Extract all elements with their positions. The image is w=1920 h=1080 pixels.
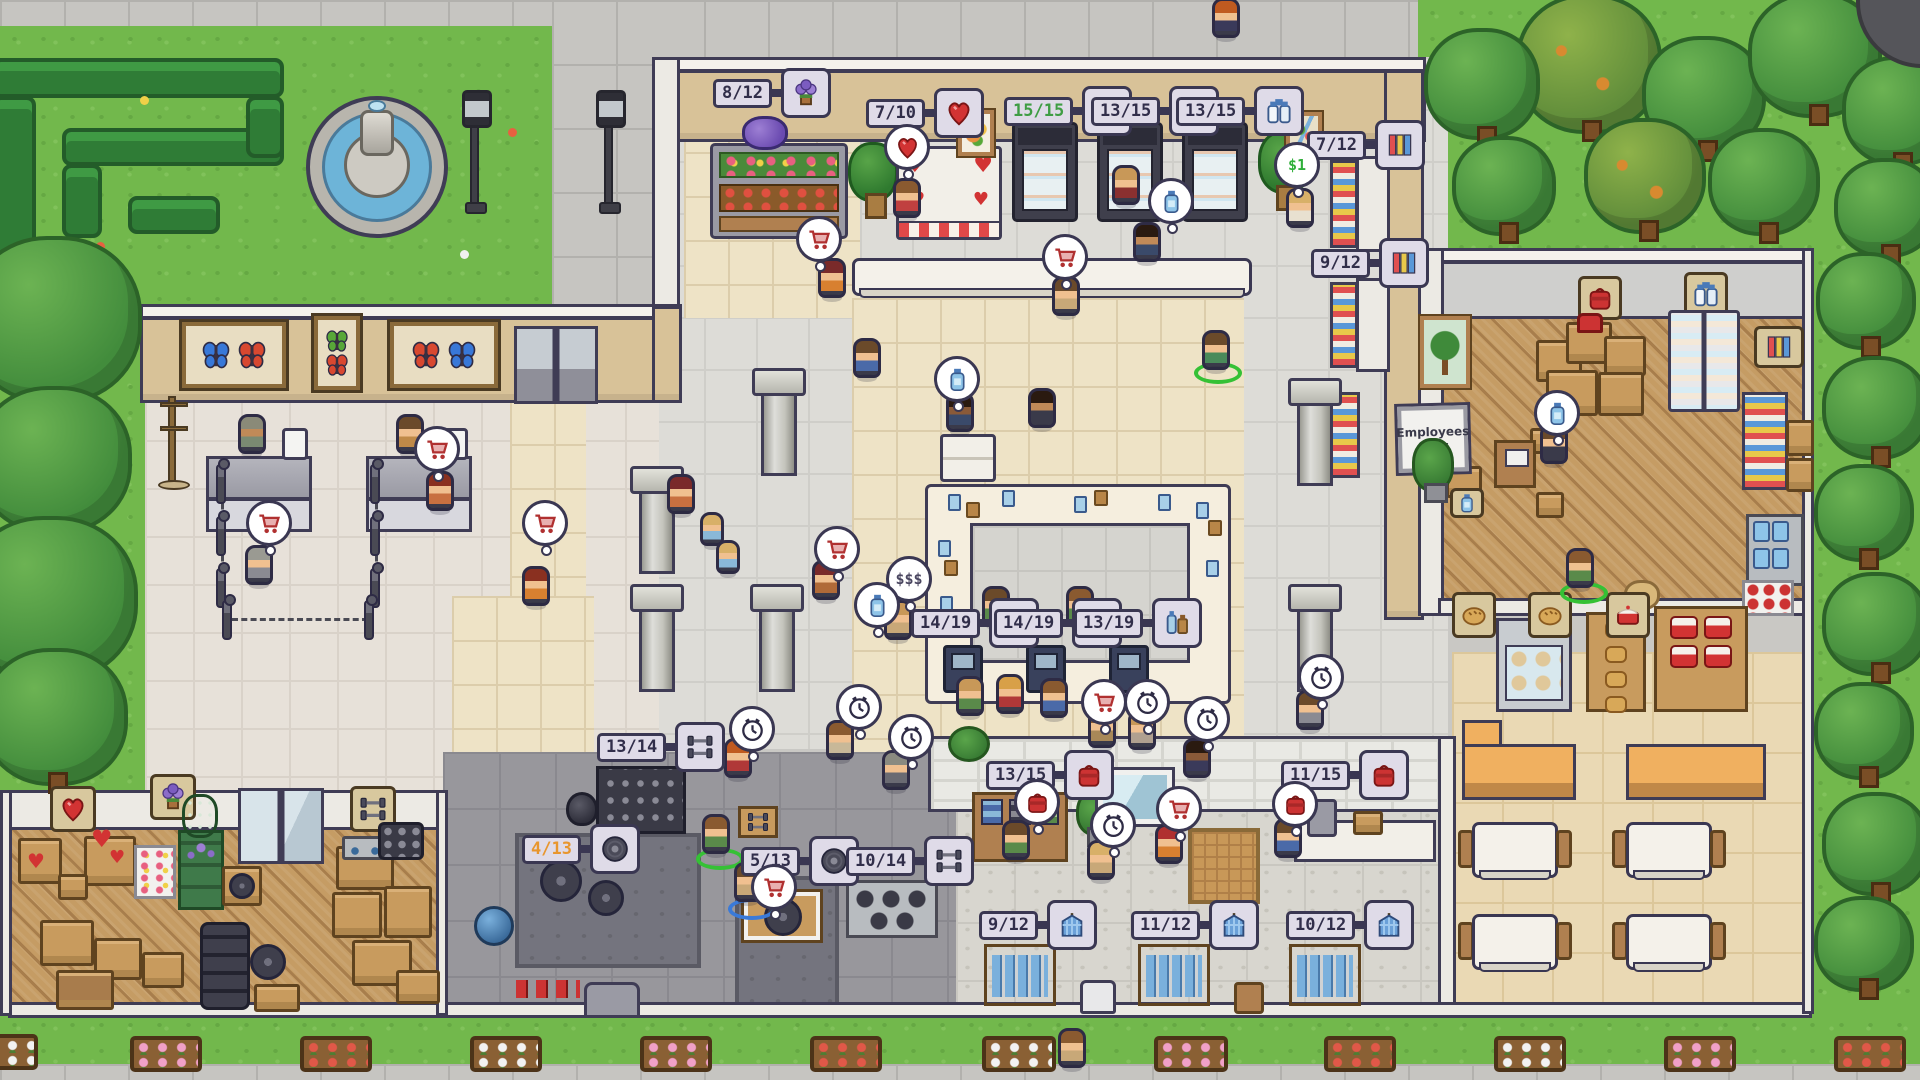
tree	[1708, 128, 1820, 236]
pedestrian[interactable]	[1212, 0, 1240, 38]
tree	[1816, 252, 1916, 350]
cafe-table[interactable]	[1626, 822, 1712, 878]
coat-stand-base	[158, 480, 190, 490]
jersey-icon	[1209, 900, 1259, 950]
jersey-icon	[1047, 900, 1097, 950]
tree-autumn	[1584, 118, 1706, 234]
butterfly-frame	[182, 322, 286, 388]
bottle-item	[1002, 490, 1015, 507]
thought-bubble	[796, 216, 842, 262]
thought-bubble	[1272, 781, 1318, 827]
customer[interactable]	[1028, 388, 1056, 428]
customer[interactable]	[667, 474, 695, 514]
cake-sign	[1606, 592, 1650, 638]
heart-icon	[894, 134, 921, 161]
stock-box	[142, 952, 184, 988]
player-character[interactable]	[1202, 330, 1230, 370]
small-shelf[interactable]	[940, 434, 996, 482]
tree	[1822, 356, 1920, 460]
thought-bubble	[1042, 234, 1088, 280]
card-reader[interactable]	[282, 428, 308, 460]
gym-worker[interactable]	[702, 814, 730, 854]
milk-bottle-icon	[944, 366, 971, 393]
heart-decal: ♥	[973, 189, 989, 210]
stock-box	[40, 920, 94, 966]
tree	[0, 236, 142, 404]
water-jug	[1772, 548, 1789, 569]
stock-value: 8/12	[713, 79, 772, 108]
backroom-worker[interactable]	[1566, 548, 1594, 588]
waiting-bubble	[888, 714, 934, 760]
backroom-top-wall	[1438, 261, 1812, 319]
hall-store-corner-wall	[652, 306, 682, 403]
cafe-counter-1[interactable]	[1462, 744, 1576, 800]
waiting-clock-icon	[1308, 664, 1335, 691]
briefcase	[1353, 811, 1383, 835]
magazine-shelf-panel	[1356, 278, 1390, 372]
shopping-cart-icon	[1052, 244, 1079, 271]
dumbbells-icon	[675, 722, 725, 772]
queue-chain	[232, 618, 368, 621]
gym-approach-patch	[452, 596, 594, 758]
gym-bag-icon	[1282, 791, 1309, 818]
valentine-stand-skirt	[899, 221, 999, 237]
weight-plate	[250, 944, 286, 980]
game-viewport: ♥ ♥ ♥ ♥ Employees Only	[0, 0, 1920, 1080]
flower-bed-pink	[130, 1036, 202, 1072]
backroom-fridge[interactable]	[1668, 310, 1740, 412]
stock-value: 7/10	[866, 99, 925, 128]
coat-stand-hook	[160, 426, 188, 431]
bottle-item	[1206, 560, 1219, 577]
water-jug	[1772, 521, 1789, 542]
waiting-bubble	[1184, 696, 1230, 742]
stock-box	[1786, 420, 1814, 456]
thought-bubble	[854, 582, 900, 628]
flower-dot	[140, 96, 149, 105]
waiting-bubble	[836, 684, 882, 730]
stock-label-dumbbells-b[interactable]: 10/14	[846, 836, 974, 886]
stock-box	[1598, 372, 1644, 416]
waiting-clock-icon	[1194, 706, 1221, 733]
cafe-chair[interactable]	[1556, 922, 1572, 960]
water-jug	[1753, 548, 1770, 569]
milk-crate-sign	[1450, 488, 1484, 518]
dumbbell-pile	[378, 822, 424, 860]
cake	[1704, 645, 1732, 668]
kettlebell	[566, 792, 598, 826]
shopping-cart-icon	[256, 510, 283, 537]
red-bag-in-box	[1577, 313, 1603, 333]
heart-item: ♥	[27, 849, 45, 873]
flower-bush	[742, 116, 788, 150]
flower-bed-pink	[1664, 1036, 1736, 1072]
queue-stanchion	[370, 464, 380, 504]
cafe-chair[interactable]	[1710, 830, 1726, 868]
customer[interactable]	[1133, 222, 1161, 262]
gym-bag-icon	[1359, 750, 1409, 800]
laptop	[1505, 449, 1529, 467]
stock-box	[332, 892, 382, 938]
pillar	[759, 606, 795, 692]
backroom-desk[interactable]	[1494, 440, 1536, 488]
stock-value: 4/13	[522, 835, 581, 864]
stock-label-jerseys-c[interactable]: 10/12	[1286, 900, 1414, 950]
open-heart-box: ♥	[18, 838, 62, 884]
heart-stock-sign	[50, 786, 96, 832]
thought-bubble	[1534, 390, 1580, 436]
butterfly-icon	[325, 329, 349, 353]
queue-stanchion	[370, 516, 380, 556]
open-heart-box: ♥♥	[84, 836, 136, 886]
waiting-clock-icon	[739, 716, 766, 743]
fountain-top	[360, 110, 394, 156]
stock-value: 10/12	[1286, 911, 1355, 940]
bread-loaf	[1605, 646, 1627, 663]
customer[interactable]	[853, 338, 881, 378]
apparel-cafe-divider	[1438, 736, 1456, 1014]
plate-stack	[200, 922, 250, 1010]
stock-value: 14/19	[994, 609, 1063, 638]
tree	[1814, 682, 1914, 780]
thought-bubble	[751, 864, 797, 910]
cactus	[182, 794, 218, 838]
red-dumbbells	[516, 980, 580, 998]
coat-stand-hook	[160, 402, 188, 407]
thought-bubble	[814, 526, 860, 572]
stock-box	[384, 886, 432, 938]
flower-dot	[508, 128, 517, 137]
stock-box	[396, 970, 440, 1004]
thought-bubble	[1014, 779, 1060, 825]
bottle-item	[938, 540, 951, 557]
customer[interactable]	[893, 178, 921, 218]
jersey-icon	[1364, 900, 1414, 950]
butterfly-icon	[237, 340, 267, 370]
cafe-table[interactable]	[1626, 914, 1712, 970]
gym-bag-icon	[1024, 789, 1051, 816]
cafe-counter-2[interactable]	[1626, 744, 1766, 800]
butterfly-frame	[390, 322, 498, 388]
shopping-cart-icon	[824, 536, 851, 563]
waiting-clock-icon	[1134, 689, 1161, 716]
pedestrian[interactable]	[1058, 1028, 1086, 1068]
milk-bottle-icon	[1158, 188, 1185, 215]
stock-value: 14/19	[911, 609, 980, 638]
thought-bubble	[884, 124, 930, 170]
shopping-cart-icon	[806, 226, 833, 253]
drinks-icon	[1152, 598, 1202, 648]
stock-box	[1786, 458, 1814, 492]
heart-decal: ♥	[973, 153, 993, 178]
jar-item	[944, 560, 958, 576]
stock-value: 13/19	[1074, 609, 1143, 638]
water-jug-shelf[interactable]	[1746, 514, 1804, 586]
bench	[1234, 982, 1264, 1014]
flower-bed-white	[0, 1034, 38, 1070]
pillar-cap	[1288, 584, 1342, 612]
cafe-table[interactable]	[1472, 822, 1558, 878]
flower-bed-pink	[640, 1036, 712, 1072]
flower-bed-white	[470, 1036, 542, 1072]
waiting-clock-icon	[1100, 812, 1127, 839]
butterfly-icon	[325, 353, 349, 377]
pillar	[761, 390, 797, 476]
thought-bubble	[1148, 178, 1194, 224]
water-jug	[1753, 521, 1770, 542]
open-box	[56, 970, 114, 1010]
sidewalk-bottom	[0, 1064, 1920, 1080]
customer[interactable]	[522, 566, 550, 606]
magazines-icon	[1379, 238, 1429, 288]
tree	[1822, 572, 1920, 676]
coat-stand	[168, 396, 176, 482]
queue-customer[interactable]	[1040, 678, 1068, 718]
apparel-clerk[interactable]	[1002, 820, 1030, 860]
flower-bed-red	[300, 1036, 372, 1072]
stock-value: 11/12	[1131, 911, 1200, 940]
flower-bed-red	[1324, 1036, 1396, 1072]
drinks-fridge-1[interactable]	[1012, 122, 1078, 222]
tree	[0, 386, 132, 534]
stock-label-checkout-c[interactable]: 13/19	[1074, 598, 1202, 648]
cafe-table[interactable]	[1472, 914, 1558, 970]
stock-value: 9/12	[979, 911, 1038, 940]
tree	[1424, 28, 1540, 140]
folded-clothes	[981, 799, 1003, 825]
pillar	[1297, 400, 1333, 486]
tree	[0, 648, 128, 786]
magazine-rack[interactable]	[1330, 282, 1358, 368]
jersey-rack[interactable]	[1138, 944, 1210, 1006]
hedge-row	[0, 58, 284, 98]
shopping-cart-icon	[1091, 689, 1118, 716]
cake	[1704, 616, 1732, 639]
bottle-item	[948, 494, 961, 511]
child-customer[interactable]	[716, 540, 740, 574]
magazine-rack[interactable]	[1330, 160, 1358, 248]
milk-bottles-icon	[1254, 86, 1304, 136]
lamp-post	[604, 122, 613, 210]
coffee-counter[interactable]	[1294, 820, 1436, 862]
exercise-ball	[474, 906, 514, 946]
tree	[1814, 896, 1914, 992]
cafe-chair[interactable]	[1556, 830, 1572, 868]
stock-label-plates-low[interactable]: 4/13	[522, 824, 640, 874]
hedge-block	[128, 196, 220, 234]
thought-bubble	[414, 426, 460, 472]
storage-glass-door[interactable]	[238, 788, 324, 864]
pillar-cap	[1288, 378, 1342, 406]
waiting-bubble	[1298, 654, 1344, 700]
flower-bed-red	[1834, 1036, 1906, 1072]
dumbbells-icon	[924, 836, 974, 886]
pillar-cap	[752, 368, 806, 396]
cake	[1670, 645, 1698, 668]
flower-crate-green	[178, 830, 224, 910]
hedge-column	[62, 164, 102, 238]
tree	[1834, 158, 1920, 258]
milk-bottle-icon	[864, 592, 891, 619]
stock-value: 15/15	[1004, 97, 1073, 126]
gym-bag-icon	[1064, 750, 1114, 800]
carried-dumbbell-box	[738, 806, 778, 838]
cake	[1670, 616, 1698, 639]
queue-stanchion	[216, 464, 226, 504]
tree	[1822, 792, 1920, 896]
shopping-cart-icon	[532, 510, 559, 537]
stock-label-dumbbell-rack[interactable]: 13/14	[597, 722, 725, 772]
bread-loaf	[1605, 696, 1627, 713]
customer[interactable]	[1112, 165, 1140, 205]
milk-bottle-icon	[1544, 400, 1571, 427]
stock-value: 13/15	[1091, 97, 1160, 126]
thought-bubble	[934, 356, 980, 402]
waiting-bubble	[1090, 802, 1136, 848]
price-bubble: $1	[1274, 142, 1320, 188]
jersey-rack[interactable]	[1289, 944, 1361, 1006]
price-text: $1	[1288, 156, 1306, 174]
laundry-cart	[1080, 980, 1116, 1014]
butterfly-icon	[447, 340, 477, 370]
butterfly-frame-small	[314, 316, 360, 390]
flower-bed-white	[982, 1036, 1056, 1072]
jar-item	[1208, 520, 1222, 536]
jar-item	[1094, 490, 1108, 506]
potted-plant	[1412, 438, 1454, 492]
bottle-item	[1158, 494, 1171, 511]
thought-bubble	[1081, 679, 1127, 725]
thought-bubble	[246, 500, 292, 546]
queue-stanchion	[364, 600, 374, 640]
shopping-cart-icon	[1166, 796, 1193, 823]
thought-bubble	[522, 500, 568, 546]
backroom-picture	[1420, 316, 1470, 388]
lamp-post	[470, 122, 479, 210]
pillar	[639, 606, 675, 692]
weight-plate	[229, 873, 255, 899]
jersey-rack[interactable]	[984, 944, 1056, 1006]
tree	[1814, 464, 1914, 562]
flower-dot	[460, 250, 469, 259]
butterfly-icon	[201, 340, 231, 370]
stock-label-jerseys-a[interactable]: 9/12	[979, 900, 1097, 950]
jar-item	[966, 502, 980, 518]
bread-loaf	[1605, 671, 1627, 688]
flower-bed-pink	[1154, 1036, 1228, 1072]
flower-cart-top-shelf	[719, 152, 839, 178]
stock-value: 13/14	[597, 733, 666, 762]
storage-left-wall	[0, 790, 12, 1016]
book-shelf-sign	[1754, 326, 1804, 368]
chat-text: $$$	[895, 570, 922, 588]
butterfly-icon	[411, 340, 441, 370]
queue-stanchion	[216, 516, 226, 556]
fitting-rug	[1188, 828, 1260, 904]
staff-member[interactable]	[238, 414, 266, 454]
gym-machine	[584, 982, 640, 1018]
barbell-rack[interactable]	[846, 880, 938, 938]
store-left-wall	[652, 57, 680, 311]
heart-item: ♥	[109, 847, 125, 868]
queue-stanchion	[222, 600, 232, 640]
stock-value: 9/12	[1311, 249, 1370, 278]
waiting-bubble	[1124, 679, 1170, 725]
heart-icon	[934, 88, 984, 138]
queue-customer[interactable]	[996, 674, 1024, 714]
weight-plate	[588, 880, 624, 916]
stock-value: 10/14	[846, 847, 915, 876]
bread-basket-sign	[1452, 592, 1496, 638]
magazines-icon	[1375, 120, 1425, 170]
small-box	[58, 874, 88, 900]
topiary-bush	[948, 726, 990, 762]
shopping-cart-icon	[761, 874, 788, 901]
stock-box	[1604, 336, 1646, 376]
cake-rack[interactable]	[1654, 606, 1748, 712]
waiting-clock-icon	[898, 724, 925, 751]
tree	[1452, 136, 1556, 236]
pastry-display-glass	[1505, 645, 1563, 701]
thought-bubble	[1156, 786, 1202, 832]
small-box	[1536, 492, 1564, 518]
backroom-magazine-shelf[interactable]	[1742, 392, 1788, 490]
stock-label-magazines-b[interactable]: 9/12	[1311, 238, 1429, 288]
stock-label-fridge-b[interactable]: 13/15	[1176, 86, 1304, 136]
flowers-icon	[781, 68, 831, 118]
hall-double-door[interactable]	[514, 326, 598, 404]
pillar-cap	[630, 584, 684, 612]
flower-cart-bottom-shelf	[719, 184, 839, 212]
fountain-spray	[368, 100, 386, 112]
weight-plate-icon	[590, 824, 640, 874]
grass-bottom-strip	[0, 1012, 1920, 1068]
plate-box	[222, 866, 262, 906]
waiting-clock-icon	[846, 694, 873, 721]
flower-crate-white	[134, 845, 176, 899]
cafe-chair[interactable]	[1710, 922, 1726, 960]
red-goods-crate	[1742, 580, 1794, 616]
waiting-bubble	[729, 706, 775, 752]
stock-label-magazines-a[interactable]: 7/12	[1307, 120, 1425, 170]
stock-label-valentine[interactable]: 7/10	[866, 88, 984, 138]
pillar-cap	[750, 584, 804, 612]
bottle-item	[1074, 496, 1087, 513]
stock-label-flowers[interactable]: 8/12	[713, 68, 831, 118]
hedge-block	[246, 96, 284, 158]
bottle-item	[1196, 502, 1209, 519]
stock-label-jerseys-b[interactable]: 11/12	[1131, 900, 1259, 950]
stock-box	[254, 984, 300, 1012]
shopping-cart-icon	[424, 436, 451, 463]
flower-bed-red	[810, 1036, 882, 1072]
stock-value: 13/15	[1176, 97, 1245, 126]
flower-bed-white	[1494, 1036, 1566, 1072]
queue-customer[interactable]	[956, 676, 984, 716]
